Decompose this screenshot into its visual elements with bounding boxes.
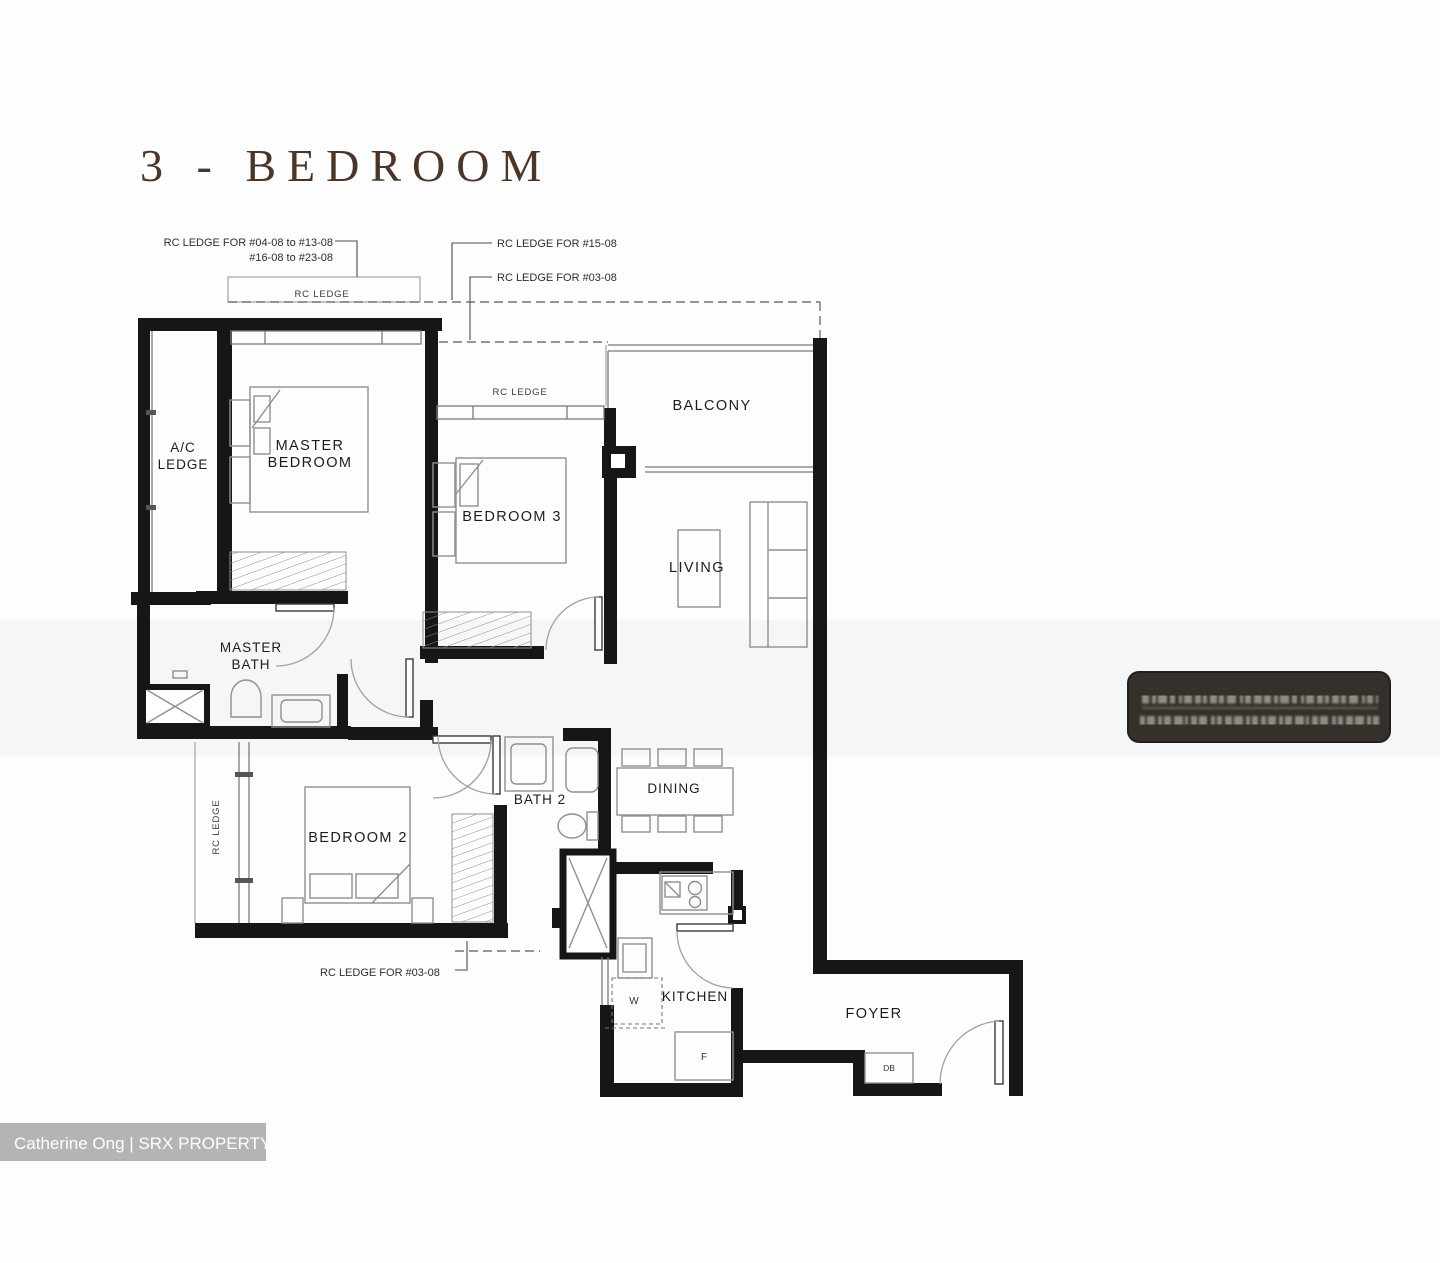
leader-line bbox=[455, 941, 467, 970]
annotation-ledge-03-top: RC LEDGE FOR #03-08 bbox=[497, 272, 617, 284]
rc-ledge-bedroom3-label: RC LEDGE bbox=[493, 387, 548, 398]
room-label-master-bath: MASTER bbox=[220, 640, 282, 655]
dining-chair bbox=[622, 816, 650, 832]
floor-plan-drawing: 3 - BEDROOM RC LEDGE FOR #04-08 to #13-0… bbox=[0, 0, 1440, 1263]
svg-text:LEDGE: LEDGE bbox=[158, 457, 209, 472]
leader-line bbox=[452, 243, 492, 300]
room-label-kitchen: KITCHEN bbox=[662, 989, 728, 1004]
bedroom3-wardrobe bbox=[423, 612, 531, 648]
toilet bbox=[558, 814, 586, 838]
bedroom3-window bbox=[437, 406, 604, 419]
bedroom2-door bbox=[433, 736, 491, 743]
room-label-bath2: BATH 2 bbox=[514, 792, 566, 807]
master-bath-door bbox=[276, 604, 334, 611]
side-table bbox=[230, 457, 250, 503]
annotation-ledge-units-a: RC LEDGE FOR #04-08 to #13-08 bbox=[164, 237, 333, 249]
room-label-foyer: FOYER bbox=[846, 1006, 903, 1022]
page-title: 3 - BEDROOM bbox=[140, 140, 552, 191]
annotation-ledge-03-bottom: RC LEDGE FOR #03-08 bbox=[320, 967, 440, 979]
dining-chair bbox=[658, 816, 686, 832]
washer-label: W bbox=[629, 996, 639, 1007]
leader-line bbox=[470, 277, 492, 340]
annotation-ledge-units-b: #16-08 to #23-08 bbox=[249, 252, 333, 264]
leader-line bbox=[335, 241, 357, 277]
room-label-bedroom2: BEDROOM 2 bbox=[308, 830, 408, 846]
side-table bbox=[412, 898, 433, 923]
rc-ledge-bedroom2-label: RC LEDGE bbox=[211, 800, 222, 855]
bath2-door bbox=[493, 736, 500, 794]
room-label-ac-ledge: A/C bbox=[170, 440, 196, 455]
room-label-dining: DINING bbox=[647, 781, 700, 796]
side-table bbox=[282, 898, 303, 923]
room-label-master-bedroom: MASTER bbox=[276, 438, 345, 454]
dining-chair bbox=[694, 816, 722, 832]
svg-text:BEDROOM: BEDROOM bbox=[268, 455, 353, 471]
annotation-ledge-15: RC LEDGE FOR #15-08 bbox=[497, 238, 617, 250]
floor-plan-page: 3 - BEDROOM RC LEDGE FOR #04-08 to #13-0… bbox=[0, 0, 1440, 1263]
master-wardrobe bbox=[230, 552, 346, 590]
room-label-bedroom3: BEDROOM 3 bbox=[462, 509, 562, 525]
room-label-living: LIVING bbox=[669, 560, 725, 576]
side-table bbox=[230, 400, 250, 446]
svg-text:BATH: BATH bbox=[231, 657, 270, 672]
bedroom2-wardrobe bbox=[452, 814, 493, 922]
approval-stamp bbox=[1128, 672, 1390, 742]
watermark: Catherine Ong | SRX PROPERTY bbox=[0, 1123, 271, 1161]
watermark-text: Catherine Ong | SRX PROPERTY bbox=[14, 1134, 271, 1153]
rc-ledge-master-label: RC LEDGE bbox=[295, 289, 350, 300]
db-label: DB bbox=[883, 1063, 895, 1073]
room-label-balcony: BALCONY bbox=[672, 398, 751, 414]
bedroom3-door bbox=[595, 597, 602, 650]
kitchen-door bbox=[677, 924, 733, 931]
master-bedroom-door bbox=[406, 659, 413, 717]
entrance-door bbox=[995, 1021, 1003, 1084]
master-window bbox=[231, 331, 421, 344]
fridge-label: F bbox=[701, 1052, 707, 1063]
